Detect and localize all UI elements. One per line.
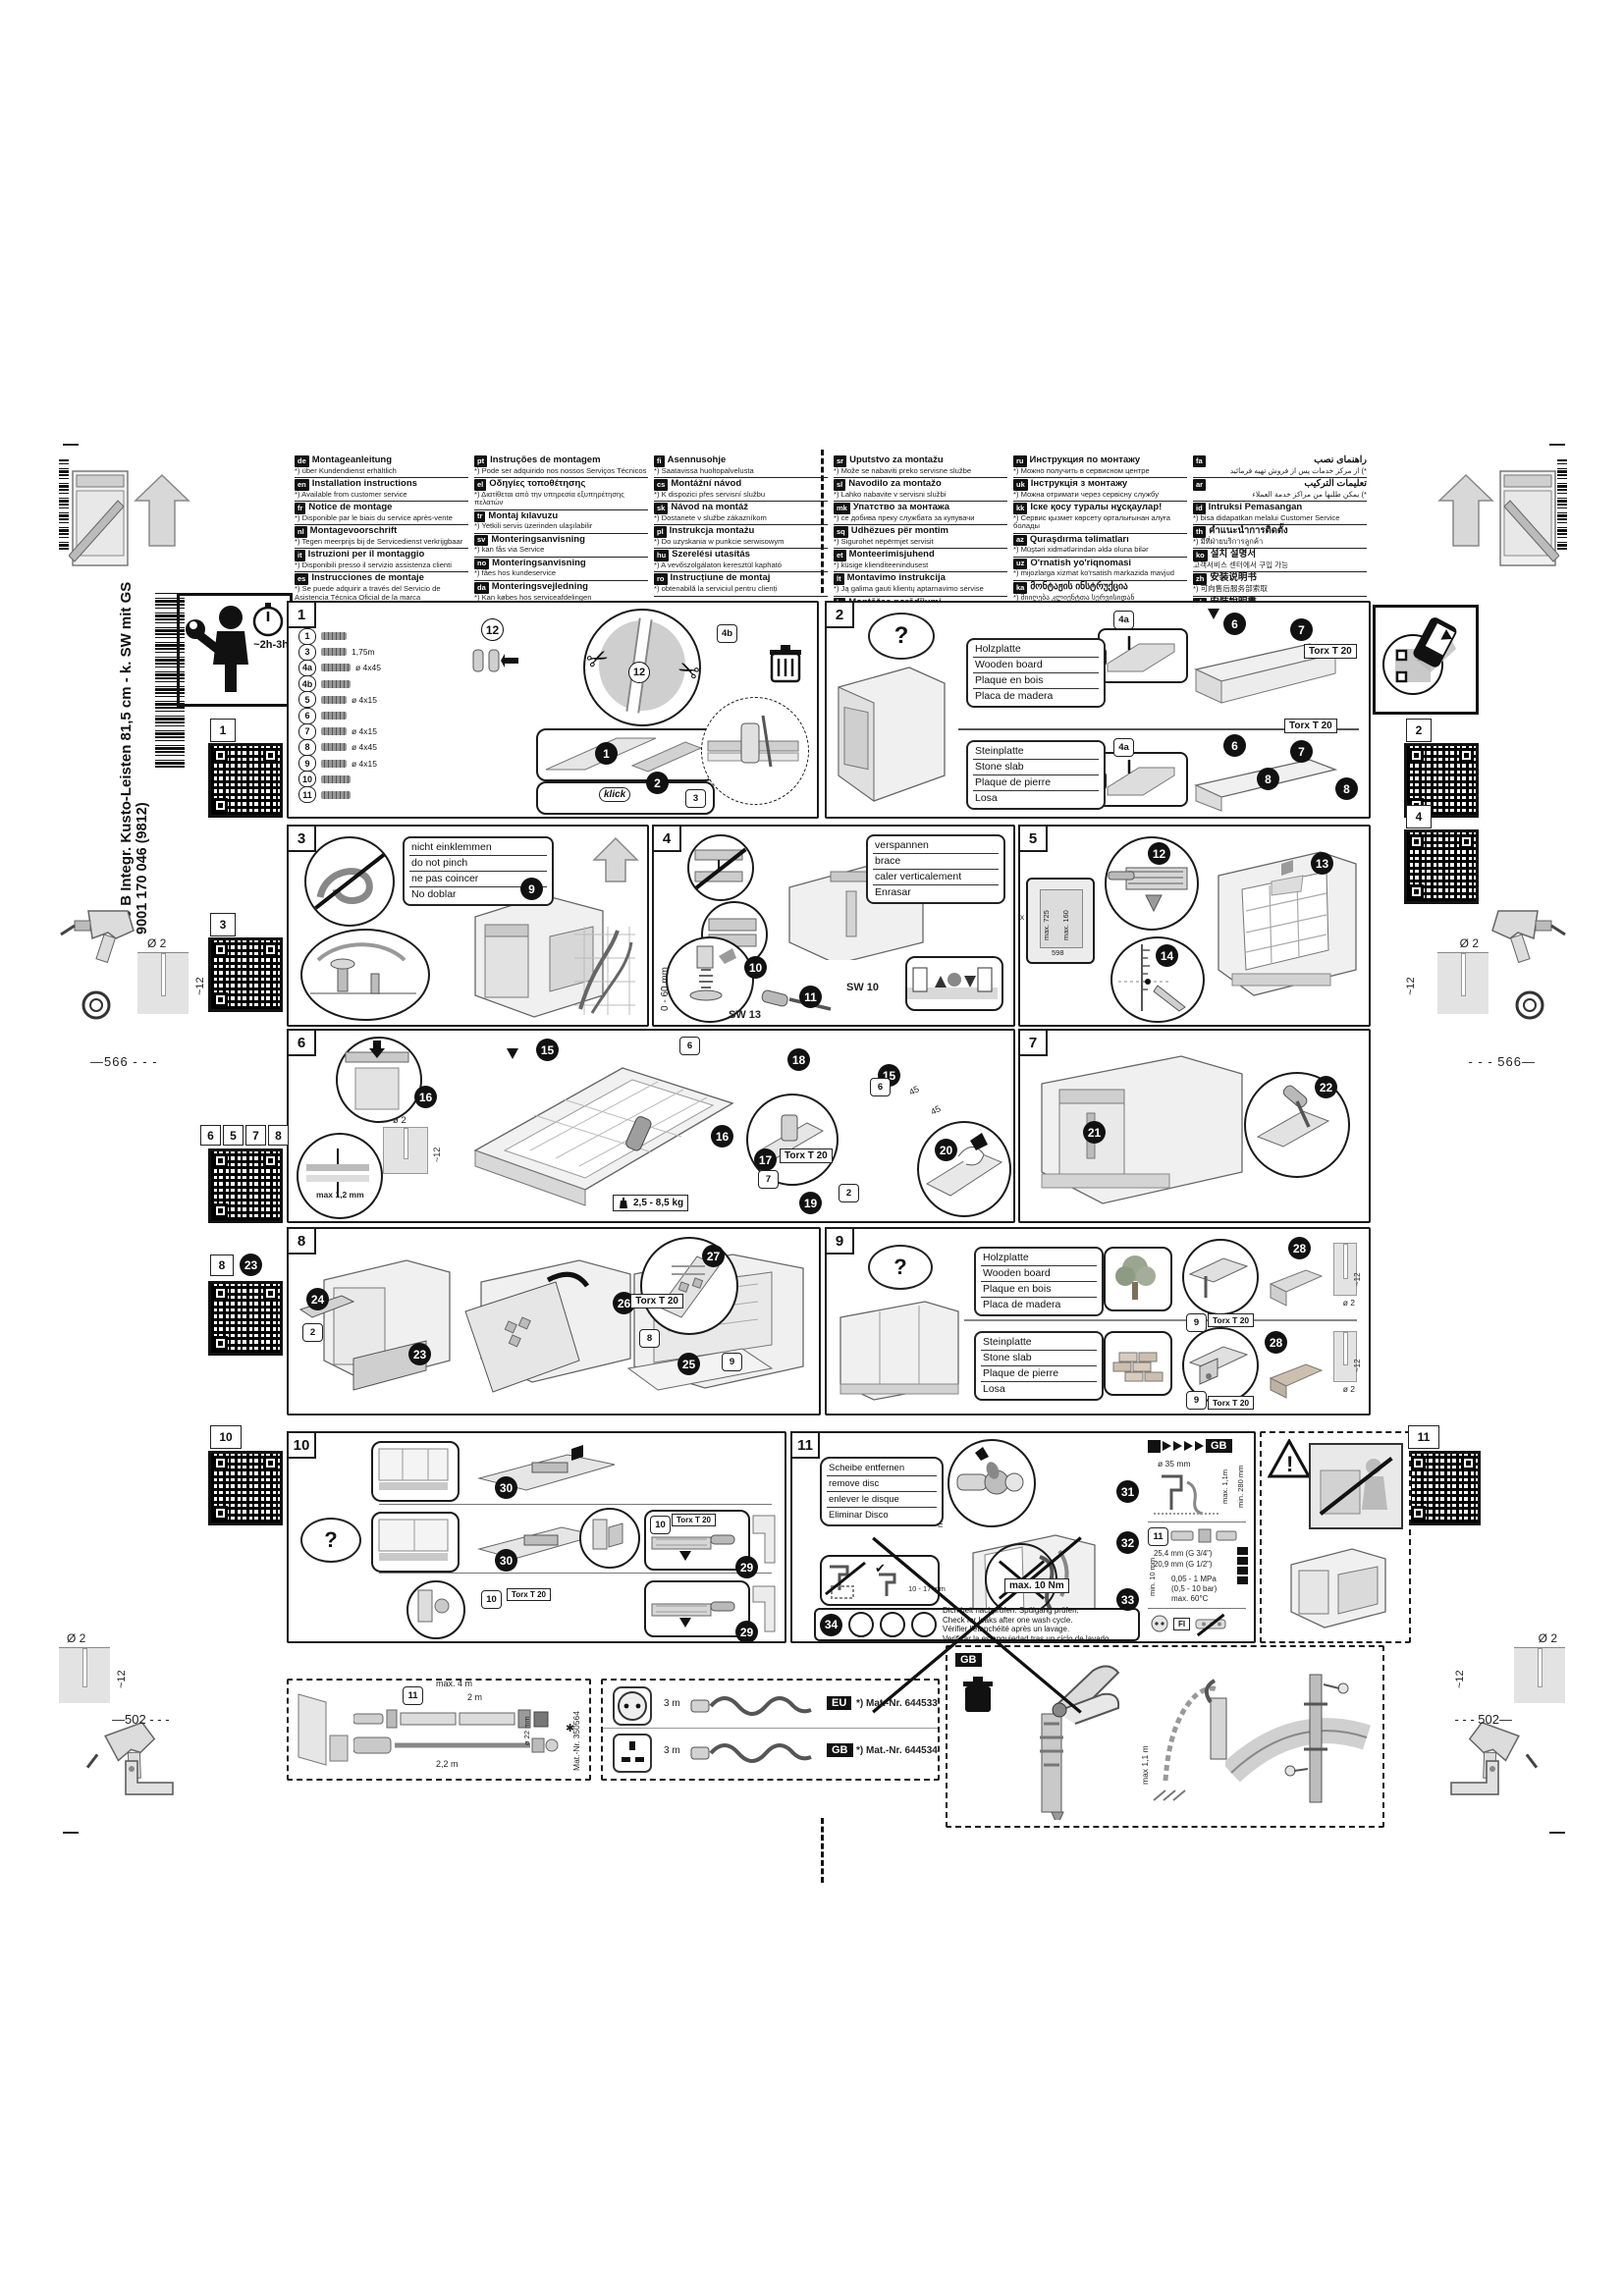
stone-label-box: Steinplatte Stone slab Plaque de pierre … — [974, 1331, 1104, 1401]
language-title: frNotice de montage — [295, 503, 468, 514]
qr-label-11: 11 — [1408, 1425, 1439, 1449]
drill-icon — [59, 905, 137, 989]
language-title-text: Instruções de montagem — [490, 455, 600, 466]
part-icon — [321, 743, 347, 751]
gb-max-height: max 1,1 m — [1140, 1745, 1150, 1785]
qr-code-step10 — [208, 1451, 283, 1525]
part-icon — [321, 680, 351, 688]
panel-number: 2 — [825, 601, 854, 628]
cabinet-variant-1 — [371, 1441, 460, 1502]
language-code-badge: fa — [1193, 455, 1206, 467]
part-2-ref: 4b — [717, 624, 737, 643]
step-panel-3: 3 nicht einklemmen do not pinch ne pas c… — [287, 825, 649, 1027]
language-title-text: Іске қосу туралы нұсқаулар! — [1030, 503, 1162, 513]
language-note: *) über Kundendienst erhältlich — [295, 467, 468, 476]
part-row: 5ø 4x15 — [298, 692, 463, 708]
drill-hint-top-left: Ø 2 ~12 —566 - - - — [57, 905, 200, 1074]
drill-bit-dia: Ø 2 — [67, 1631, 85, 1645]
klick-label: klick — [599, 787, 630, 802]
hose-22m: 2,2 m — [436, 1759, 459, 1769]
uk-socket-icon — [613, 1734, 652, 1773]
row-divider — [379, 1573, 772, 1574]
stone-label-box: Steinplatte Stone slab Plaque de pierre … — [966, 740, 1106, 810]
crop-mark — [1549, 444, 1565, 446]
part-row: 8ø 4x45 — [298, 739, 463, 755]
pilot-hole — [137, 952, 189, 1014]
remove-disc-label-box: Scheibe entfernen remove disc enlever le… — [820, 1457, 944, 1526]
part-number-badge: 1 — [298, 628, 316, 645]
language-title-text: Упатство за монтажа — [853, 503, 949, 513]
language-note: *) Available from customer service — [295, 491, 468, 500]
label-es: Eliminar Disco — [827, 1508, 937, 1522]
offset-502: —502 - - - — [112, 1712, 170, 1727]
language-title: skNávod na montáž — [654, 503, 828, 514]
language-code-badge: el — [474, 479, 486, 491]
language-note: *) obtenabilă la serviciul pentru clienț… — [654, 585, 828, 594]
language-note: *) Διατίθεται από την υπηρεσία εξυπηρέτη… — [474, 491, 648, 507]
pilot-dia: ø 2 — [1343, 1384, 1355, 1394]
qr-label-23: 23 — [240, 1254, 262, 1276]
part-number-badge: 9 — [298, 755, 316, 772]
step-panel-1: 1 131,75m4aø 4x454b5ø 4x1567ø 4x158ø 4x4… — [287, 601, 819, 819]
step-marker: 27 — [702, 1245, 725, 1267]
qr-label-7: 7 — [245, 1125, 266, 1146]
torx-label: Torx T 20 — [1208, 1313, 1254, 1327]
cables-grid-sketch — [570, 925, 639, 1019]
leak-check-text: Dichtheit nachprüfen: Spülgang prüfen. C… — [943, 1606, 1111, 1643]
detail-circle-clip — [701, 697, 809, 805]
language-title-text: Instrukcja montażu — [670, 526, 755, 537]
language-code-badge: sk — [654, 503, 668, 514]
order-number: 9001 170 046 (9812) — [135, 575, 150, 934]
language-note: *) bisa didapatkan melalui Customer Serv… — [1193, 514, 1367, 523]
language-title-text: Οδηγίες τοποθέτησης — [489, 479, 585, 490]
language-title-text: تعليمات التركيب — [1209, 479, 1367, 490]
counter-edge-sketch — [1192, 630, 1339, 707]
language-note: *) 可向售后服务部索取 — [1193, 585, 1367, 594]
mounting-foot-icon — [122, 1751, 181, 1800]
pilot-depth: ~12 — [1353, 1272, 1362, 1286]
step-marker: 16 — [711, 1125, 733, 1148]
pilot-hole-box — [1333, 1243, 1357, 1296]
gb-panel-badge: GB — [955, 1653, 982, 1667]
language-title: enInstallation instructions — [295, 479, 468, 491]
part-ref: 10 — [481, 1590, 502, 1609]
step-marker: 22 — [1315, 1076, 1337, 1098]
question-cloud: ? — [868, 613, 935, 660]
label-fr: Plaque de pierre — [973, 775, 1099, 791]
part-icon — [321, 664, 351, 671]
language-title-text: Installation instructions — [312, 479, 417, 490]
hose-mat-nr: Mat.-Nr. 350564 — [571, 1711, 581, 1771]
part-icon — [321, 696, 347, 704]
part-number-badge: 4b — [298, 675, 316, 692]
language-title-text: Monteringsanvisning — [492, 559, 586, 569]
language-entry: kkІске қосу туралы нұсқаулар!*) Сервис қ… — [1013, 502, 1187, 534]
cabinet-door-sketch — [1034, 1044, 1250, 1211]
part-icon — [321, 712, 347, 720]
language-entry: skNávod na montáž*) Dostanete v službe z… — [654, 502, 828, 525]
label-es: Placa de madera — [973, 689, 1099, 704]
kitchen-row-sketch — [835, 1290, 962, 1406]
language-title-text: Инструкция по монтажу — [1030, 455, 1141, 466]
torx-label: Torx T 20 — [672, 1514, 716, 1526]
gb-mat-nr: *) Mat.-Nr. 644534 — [856, 1745, 938, 1756]
step-panel-10: 10 ? 30 30 10 Torx T 20 29 — [287, 1431, 786, 1643]
offset-502: - - - 502— — [1454, 1712, 1512, 1727]
clip-detail-circle — [579, 1508, 640, 1569]
language-note: *) mijozlarga xizmat ko'rsatish markazid… — [1013, 569, 1187, 578]
fit-strip-sketch — [538, 730, 709, 775]
language-title: arتعليمات التركيب — [1193, 479, 1367, 491]
panel-number: 5 — [1018, 825, 1048, 852]
part-number-badge: 3 — [298, 644, 316, 661]
language-code-badge: ka — [1013, 582, 1027, 594]
torque-label: max. 10 Nm — [1004, 1578, 1069, 1593]
forbidden-image — [1309, 1443, 1403, 1529]
language-note: *) Можна отримати через сервісну службу — [1013, 491, 1187, 500]
language-entry: faراهنمای نصب*) از مرکز خدمات پس از فروش… — [1193, 454, 1367, 478]
language-code-badge: uk — [1013, 479, 1028, 491]
pilot-depth: ~12 — [1405, 977, 1417, 995]
language-note: *) Tegen meerprijs bij de Servicedienst … — [295, 538, 468, 547]
pilot-hole — [1437, 952, 1489, 1014]
pilot-depth: ~12 — [194, 977, 206, 995]
tap-disc-circle — [947, 1439, 1036, 1527]
waste-bin-icon — [959, 1675, 999, 1718]
level-indicator-box — [905, 956, 1003, 1011]
language-entry: roInstrucțiune de montaj*) obtenabilă la… — [654, 572, 828, 596]
language-note: *) يمكن طلبها من مراكز خدمة العملاء — [1193, 491, 1367, 500]
step-marker: 24 — [306, 1288, 329, 1310]
language-entry: sqUdhëzues për montim*) Sigurohet nëpërm… — [834, 525, 1007, 549]
qr-code-step1 — [208, 743, 283, 818]
part-number-badge: 7 — [298, 723, 316, 740]
drill-bit-dia: Ø 2 — [147, 936, 166, 950]
brace-label-box: verspannen brace caler verticalement Enr… — [866, 834, 1005, 904]
part-number-badge: 8 — [298, 739, 316, 756]
language-note: *) Može se nabaviti preko servisne služb… — [834, 467, 1007, 476]
step-panel-2: 2 ? Holzplatte Wooden board Plaque en bo… — [825, 601, 1371, 819]
fix-detail-circle — [1182, 1239, 1259, 1315]
language-entry: csMontážní návod*) K dispozici přes serv… — [654, 478, 828, 502]
warning-panel: ! — [1260, 1431, 1411, 1643]
part-6-ref: 6 — [679, 1037, 700, 1055]
label-en: do not pinch — [409, 856, 547, 872]
part-icon — [321, 727, 347, 735]
part-row: 31,75m — [298, 644, 463, 660]
part-10-ref: 10 — [650, 1516, 671, 1534]
language-note: *) kan fås via Service — [474, 546, 648, 555]
language-title-text: მონტაჟის ინსტრუქცია — [1030, 582, 1128, 593]
language-title: deMontageanleitung — [295, 455, 468, 467]
gb-cord-icon — [689, 1734, 817, 1771]
part-spec: ø 4x45 — [352, 742, 377, 752]
variant-divider — [964, 1319, 1357, 1321]
language-note: *) Disponibili presso il servizio assist… — [295, 561, 468, 570]
waste-bin-icon — [766, 642, 807, 685]
language-entry: svMonteringsanvisning*) kan fås via Serv… — [474, 534, 648, 558]
language-code-badge: fi — [654, 455, 665, 467]
language-title: daMonteringsvejledning — [474, 582, 648, 594]
language-entry: ltMontavimo instrukcija*) Ją galima gaut… — [834, 572, 1007, 596]
drill-icon — [1489, 905, 1567, 989]
crosshair-icon — [1512, 988, 1547, 1023]
language-note: *) Pode ser adquirido nos nossos Serviço… — [474, 467, 648, 476]
pilot-dia: ø 2 — [1343, 1298, 1355, 1308]
language-note: *) มีที่ฝ่ายบริการลูกค้า — [1193, 538, 1367, 547]
drain-min-h: min. 280 mm — [1236, 1466, 1245, 1508]
part-12-ref: 12 — [628, 662, 650, 683]
pilot-depth: ~12 — [432, 1148, 442, 1162]
panel-number: 3 — [287, 825, 316, 852]
min10: min. 10 mm — [1148, 1558, 1157, 1596]
language-entry: enInstallation instructions*) Available … — [295, 478, 468, 502]
torx-label: Torx T 20 — [1284, 719, 1337, 733]
adjust-box: 10 Torx T 20 29 — [644, 1510, 750, 1571]
label-en: Stone slab — [981, 1351, 1097, 1366]
label-de: nicht einklemmen — [409, 840, 547, 856]
label-en: remove disc — [827, 1476, 937, 1492]
step-marker: 7 — [1290, 618, 1313, 641]
part-6-ref: 6 — [870, 1078, 891, 1096]
label-fr: caler verticalement — [873, 870, 999, 885]
language-code-badge: da — [474, 582, 489, 594]
language-entry: arتعليمات التركيب*) يمكن طلبها من مراكز … — [1193, 478, 1367, 502]
detail-circle-plugs: ✂ ✂ 12 — [583, 609, 701, 726]
language-entry: idIntruksi Pemasangan*) bisa didapatkan … — [1193, 502, 1367, 525]
dishwasher-lift-sketch — [1283, 1535, 1391, 1633]
pilot-hole-box — [1333, 1331, 1357, 1382]
language-title: csMontážní návod — [654, 479, 828, 491]
language-note: *) küsige klienditeenindusest — [834, 561, 1007, 570]
language-title: srUputstvo za montažu — [834, 455, 1007, 467]
language-entry: etMonteerimisjuhend*) küsige klienditeen… — [834, 549, 1007, 572]
part-2-ref: 2 — [839, 1184, 859, 1202]
step-panel-5: 5 max. 725 max. 160 598 x 12 — [1018, 825, 1371, 1027]
fi-label: FI — [1173, 1618, 1190, 1630]
template-diagram: max. 725 max. 160 598 x — [1026, 878, 1095, 964]
language-code-badge: mk — [834, 503, 850, 514]
qr-label-6: 6 — [200, 1125, 221, 1146]
step-marker: 33 — [1116, 1588, 1139, 1611]
language-code-badge: ru — [1013, 455, 1027, 467]
language-title: ptInstruções de montagem — [474, 455, 648, 467]
wood-label-box: Holzplatte Wooden board Plaque en bois P… — [974, 1247, 1104, 1316]
gap-wrong-circle — [687, 834, 754, 901]
parts-list: 131,75m4aø 4x454b5ø 4x1567ø 4x158ø 4x459… — [298, 628, 463, 803]
down-arrow — [507, 1048, 518, 1059]
door-mount-sketch — [461, 1243, 638, 1408]
eu-badge: EU — [827, 1696, 851, 1710]
crosshair-icon — [79, 988, 114, 1023]
part-number-badge: 6 — [298, 708, 316, 724]
language-title: faراهنمای نصب — [1193, 455, 1367, 467]
language-code-badge: ar — [1193, 479, 1206, 491]
pilot-hole-box — [383, 1127, 428, 1174]
see-gb-ref: GB — [1148, 1439, 1232, 1453]
language-title-text: 安装说明书 — [1210, 573, 1257, 584]
adjust-box: 29 — [644, 1580, 750, 1637]
step-marker: 9 — [520, 878, 543, 900]
product-name: 640 B Integr. Kusto-Leisten 81,5 cm - k.… — [118, 575, 135, 934]
language-entry: mkУпатство за монтажа*) се добива преку … — [834, 502, 1007, 525]
counter-sketch — [1267, 1353, 1326, 1402]
language-entry: huSzerelési utasítás*) A vevőszolgálaton… — [654, 549, 828, 572]
language-title-text: Istruzioni per il montaggio — [308, 550, 425, 561]
clip-detail-circle — [406, 1580, 465, 1639]
eu-mat-nr: *) Mat.-Nr. 644533 — [856, 1698, 938, 1709]
part-4a-badge: 4a — [1113, 611, 1134, 629]
wrench-size: SW 10 — [846, 982, 879, 993]
qr-code-step3 — [208, 937, 283, 1012]
qr-label-8: 8 — [268, 1125, 289, 1146]
language-entry: azQuraşdırma təlimatları*) Müştəri xidmə… — [1013, 534, 1187, 558]
eu-cord-icon — [689, 1686, 817, 1724]
label-fr: Plaque en bois — [981, 1282, 1097, 1298]
part-number-badge: 5 — [298, 691, 316, 708]
crop-mark — [1549, 1832, 1565, 1834]
hose-2m: 2 m — [467, 1692, 482, 1702]
hose-couplers-icon — [1169, 1527, 1238, 1543]
drill-bit-dia: Ø 2 — [1539, 1631, 1557, 1645]
label-de: Steinplatte — [981, 1335, 1097, 1351]
step-marker: 30 — [495, 1549, 517, 1572]
connection-info-column: GB ø 35 mm max. 1,1m min. 280 mm 11 25,4… — [1148, 1439, 1248, 1635]
part-9-ref: 9 — [1186, 1313, 1207, 1332]
label-fr: Plaque en bois — [973, 673, 1099, 689]
worktop-clip-sketch — [1225, 1655, 1373, 1818]
step-marker: 8 — [1257, 768, 1279, 790]
language-title-text: Montageanleitung — [312, 455, 392, 466]
step-marker: 32 — [1116, 1531, 1139, 1554]
language-entry: elΟδηγίες τοποθέτησης*) Διατίθεται από τ… — [474, 478, 648, 510]
language-title-text: Navodilo za montažo — [848, 479, 941, 490]
substep-box-2: 2 klick 3 — [536, 781, 715, 815]
wall-plugs-icon — [469, 646, 520, 675]
step-marker: 29 — [735, 1621, 758, 1643]
panel-number: 1 — [287, 601, 316, 628]
foot-range: 0 - 60 mm — [660, 967, 671, 1011]
qr-label-2: 2 — [1406, 719, 1432, 742]
schuko-socket-icon — [613, 1686, 652, 1726]
language-note: *) се добива преку службата за купувачи — [834, 514, 1007, 523]
label-en: Wooden board — [973, 658, 1099, 673]
step-panel-11: 11 Scheibe entfernen remove disc enlever… — [790, 1431, 1256, 1643]
pilot-depth: ~12 — [1454, 1670, 1466, 1688]
part-11-ref: 11 — [403, 1686, 423, 1705]
language-entry: frNotice de montage*) Disponible par le … — [295, 502, 468, 525]
gap-limit: max 1,2 mm — [316, 1190, 364, 1200]
step-marker: 12 — [1148, 842, 1170, 865]
eu-cord-length: 3 m — [664, 1698, 680, 1709]
detail-top-gap-circle — [336, 1037, 422, 1123]
part-icon — [321, 648, 347, 656]
label-de: Holzplatte — [973, 642, 1099, 658]
part-number-badge: 4a — [298, 660, 316, 676]
language-note: *) Müştəri xidmətlərindən əldə oluna bil… — [1013, 546, 1187, 555]
detail-circle-strip: 12 — [1105, 836, 1199, 931]
language-title: kaმონტაჟის ინსტრუქცია — [1013, 582, 1187, 594]
label-fr: enlever le disque — [827, 1492, 937, 1508]
language-entry: slNavodilo za montažo*) Lahko nabavite v… — [834, 478, 1007, 502]
language-title: ukІнструкція з монтажу — [1013, 479, 1187, 491]
language-title: kkІске қосу туралы нұсқаулар! — [1013, 503, 1187, 514]
stopwatch-icon — [248, 600, 288, 639]
language-title: mkУпатство за монтажа — [834, 503, 1007, 514]
detail-circle-mark: 14 — [1110, 936, 1205, 1023]
down-arrow — [1208, 609, 1219, 619]
step-marker: 7 — [1290, 740, 1313, 763]
qr-code-steps5-8 — [208, 1148, 283, 1223]
language-title-text: Monteerimisjuhend — [849, 550, 935, 561]
door-weight-box: 2,5 - 8,5 kg — [613, 1195, 688, 1211]
language-title-text: Notice de montage — [308, 503, 392, 513]
language-note: *) Lahko nabavite v servisni službi — [834, 491, 1007, 500]
language-title-text: O'rnatish yo'riqnomasi — [1030, 559, 1131, 569]
step-marker: 11 — [799, 986, 822, 1008]
offset-566: —566 - - - — [90, 1054, 158, 1069]
pliers-hose-sketch — [1008, 1655, 1126, 1820]
part-8-ref: 8 — [639, 1329, 660, 1348]
language-note: *) Sigurohet nëpërmjet servisit — [834, 538, 1007, 547]
step-marker: 31 — [1116, 1480, 1139, 1503]
tree-icon — [1106, 1249, 1166, 1306]
template-h1: max. 725 — [1042, 910, 1051, 940]
qr-label-6578: 6 5 7 8 — [200, 1125, 289, 1146]
peel-detail-circle: 20 — [917, 1121, 1011, 1217]
part-row: 4b — [298, 676, 463, 692]
part-number-badge: 10 — [298, 771, 316, 787]
language-entry: noMonteringsanvisning*) fåes hos kundese… — [474, 558, 648, 581]
no-extension-icon — [1194, 1615, 1227, 1632]
qr-label-3: 3 — [210, 913, 236, 936]
language-title-text: Uputstvo za montažu — [849, 455, 944, 466]
template-w: 598 — [1052, 948, 1064, 957]
language-code-badge: id — [1193, 503, 1206, 514]
part-spec: ø 4x45 — [355, 663, 381, 672]
part-icon — [321, 760, 347, 768]
dishwasher-iso-sketch — [833, 658, 950, 805]
language-code-badge: pt — [474, 455, 487, 467]
language-entry: ptInstruções de montagem*) Pode ser adqu… — [474, 454, 648, 478]
label-de: Steinplatte — [973, 744, 1099, 760]
label-es: Placa de madera — [981, 1298, 1097, 1312]
part-row: 1 — [298, 628, 463, 644]
drill-hint-top-right: Ø 2 ~12 - - - 566— — [1426, 905, 1569, 1074]
part-row: 7ø 4x15 — [298, 723, 463, 739]
language-title: ruИнструкция по монтажу — [1013, 455, 1187, 467]
step-marker: 19 — [799, 1192, 822, 1214]
language-title-text: Інструкція з монтажу — [1031, 479, 1127, 490]
language-note: *) Сервис қызмет көрсету орталығынан алу… — [1013, 514, 1187, 531]
language-note: *) K dispozici přes servisní službu — [654, 491, 828, 500]
language-title-text: Quraşdırma təlimatları — [1030, 535, 1129, 546]
part-row: 11 — [298, 787, 463, 803]
wall-corner-sketch — [293, 1688, 352, 1773]
wrench-size: SW 13 — [729, 1009, 761, 1021]
language-entry: itIstruzioni per il montaggio*) Disponib… — [295, 549, 468, 572]
language-entry: uzO'rnatish yo'riqnomasi*) mijozlarga xi… — [1013, 558, 1187, 581]
drill-hint-bottom-right: Ø 2 ~12 - - - 502— — [1424, 1626, 1571, 1802]
language-title: elΟδηγίες τοποθέτησης — [474, 479, 648, 491]
hose-dia: ø 22 mm — [522, 1716, 531, 1745]
language-title-text: راهنمای نصب — [1209, 455, 1367, 466]
screw-detail-circle: 22 — [1244, 1072, 1350, 1178]
step-marker: 30 — [495, 1476, 517, 1499]
language-note: *) Yetkili servis üzerinden ulaşılabilir — [474, 522, 648, 531]
step-panel-8: 8 24 2 23 26 25 27 — [287, 1227, 821, 1415]
